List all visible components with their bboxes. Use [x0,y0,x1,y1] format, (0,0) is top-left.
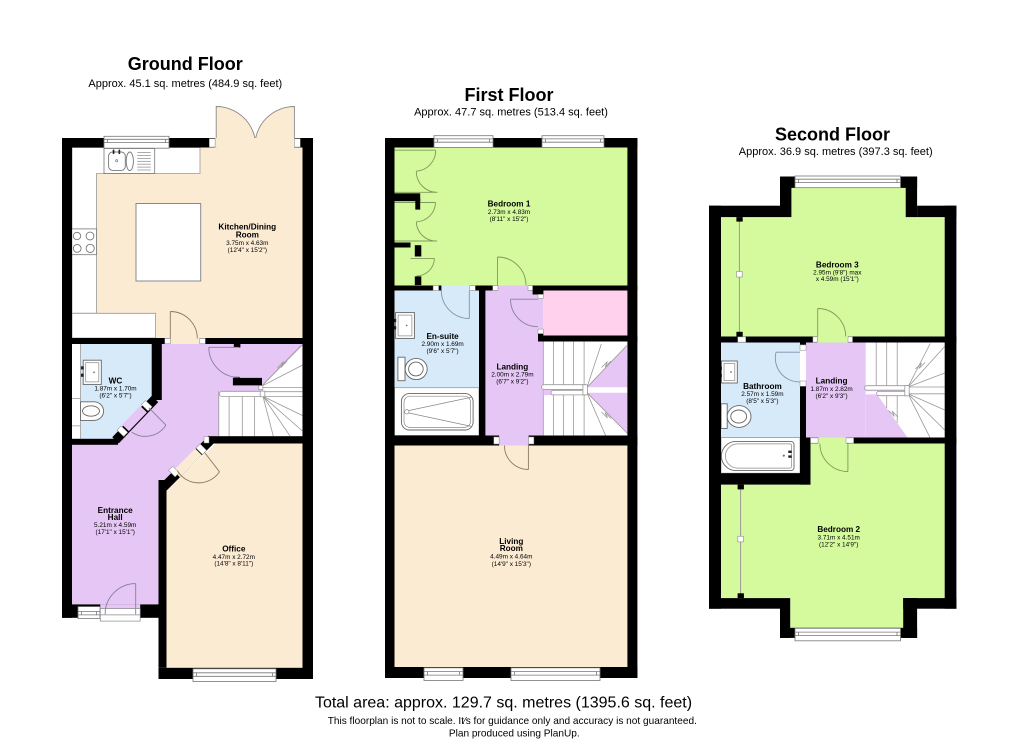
svg-text:2.73m x 4.83m: 2.73m x 4.83m [488,209,530,216]
svg-text:(14'9" x 15'3"): (14'9" x 15'3") [492,561,531,568]
svg-text:Bedroom 3: Bedroom 3 [816,261,859,270]
svg-text:First Floor: First Floor [465,85,554,105]
svg-text:(6'2" x 5'7"): (6'2" x 5'7") [99,393,131,400]
svg-text:Bathroom: Bathroom [743,382,782,391]
svg-text:4.49m x 4.64m: 4.49m x 4.64m [490,554,532,561]
svg-text:Bedroom 2: Bedroom 2 [817,525,860,534]
svg-text:x 4.59m (15'1"): x 4.59m (15'1") [816,276,859,283]
svg-text:Office: Office [222,545,246,554]
svg-text:Landing: Landing [816,377,848,386]
svg-text:(8'5" x 5'3"): (8'5" x 5'3") [746,398,778,405]
svg-text:(12'2" x 14'9"): (12'2" x 14'9") [819,541,858,548]
svg-text:(8'11" x 15'2"): (8'11" x 15'2") [490,216,529,223]
svg-text:Total area: approx. 129.7 sq.: Total area: approx. 129.7 sq. metres (13… [315,695,692,712]
svg-text:Landing: Landing [496,363,528,372]
svg-text:Room: Room [236,230,259,239]
svg-text:(12'4" x 15'2"): (12'4" x 15'2") [228,247,267,254]
svg-text:2.57m x 1.59m: 2.57m x 1.59m [741,391,783,398]
svg-text:Ground Floor: Ground Floor [128,54,243,74]
svg-text:Second Floor: Second Floor [775,124,890,144]
svg-text:(9'6" x 5'7"): (9'6" x 5'7") [426,348,458,355]
svg-text:Approx. 36.9 sq. metres (397.3: Approx. 36.9 sq. metres (397.3 sq. feet) [739,146,933,158]
svg-text:Hall: Hall [108,513,123,522]
svg-text:(17'1" x 15'1"): (17'1" x 15'1") [96,529,135,536]
svg-text:WC: WC [109,376,123,385]
svg-text:1.87m x 1.70m: 1.87m x 1.70m [94,386,136,393]
svg-text:(6'2" x 9'3"): (6'2" x 9'3") [815,393,847,400]
svg-text:En-suite: En-suite [426,332,459,341]
svg-text:Room: Room [500,544,523,553]
svg-text:This floorplan is not to scale: This floorplan is not to scale. It⁄s for… [328,716,697,727]
svg-text:1.87m x 2.82m: 1.87m x 2.82m [810,386,852,393]
svg-text:Approx. 45.1 sq. metres (484.9: Approx. 45.1 sq. metres (484.9 sq. feet) [88,78,282,90]
svg-text:(14'8" x 8'11"): (14'8" x 8'11") [214,561,253,568]
svg-text:Approx. 47.7 sq. metres (513.4: Approx. 47.7 sq. metres (513.4 sq. feet) [414,106,608,118]
svg-text:3.75m x 4.63m: 3.75m x 4.63m [226,240,268,247]
svg-text:(6'7" x 9'2"): (6'7" x 9'2") [496,379,528,386]
svg-text:Plan produced using PlanUp.: Plan produced using PlanUp. [449,728,580,739]
svg-text:Bedroom 1: Bedroom 1 [488,200,531,209]
